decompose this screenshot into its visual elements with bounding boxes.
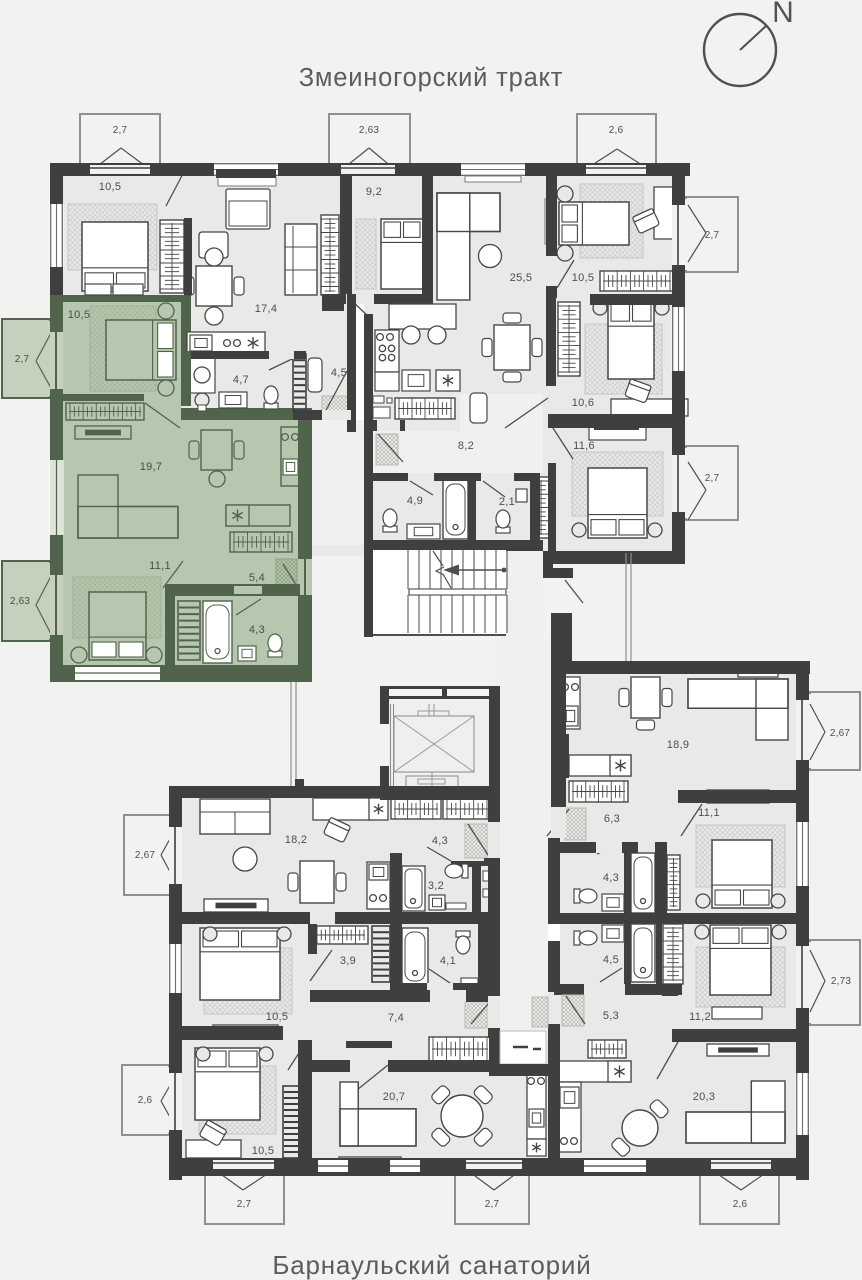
svg-text:8,2: 8,2: [458, 440, 474, 452]
svg-text:11,1: 11,1: [149, 560, 171, 572]
svg-text:20,3: 20,3: [693, 1091, 716, 1103]
svg-text:11,2: 11,2: [689, 1011, 711, 1023]
svg-text:11,6: 11,6: [573, 440, 595, 452]
svg-text:19,7: 19,7: [140, 461, 163, 473]
svg-text:7,4: 7,4: [388, 1012, 404, 1024]
svg-text:5,3: 5,3: [603, 1010, 619, 1022]
svg-text:4,5: 4,5: [331, 367, 347, 379]
svg-text:4,1: 4,1: [440, 955, 456, 967]
svg-text:18,9: 18,9: [667, 739, 690, 751]
svg-text:17,4: 17,4: [255, 303, 278, 315]
svg-text:9,2: 9,2: [366, 186, 382, 198]
svg-text:N: N: [772, 0, 794, 29]
svg-text:4,3: 4,3: [432, 835, 448, 847]
svg-text:2,6: 2,6: [609, 125, 624, 136]
svg-text:Барнаульский санаторий: Барнаульский санаторий: [272, 1250, 591, 1280]
svg-text:2,7: 2,7: [15, 354, 30, 365]
svg-text:10,5: 10,5: [266, 1011, 289, 1023]
svg-text:4,3: 4,3: [603, 872, 619, 884]
svg-text:10,5: 10,5: [99, 181, 122, 193]
svg-text:2,67: 2,67: [830, 728, 851, 739]
svg-text:6,3: 6,3: [604, 813, 620, 825]
svg-text:2,7: 2,7: [705, 473, 720, 484]
svg-text:2,6: 2,6: [138, 1095, 153, 1106]
svg-text:4,5: 4,5: [603, 954, 619, 966]
svg-text:2,73: 2,73: [831, 976, 852, 987]
svg-text:2,63: 2,63: [359, 125, 380, 136]
svg-text:Змеиногорский тракт: Змеиногорский тракт: [299, 64, 564, 92]
svg-text:18,2: 18,2: [285, 834, 308, 846]
svg-text:4,7: 4,7: [233, 374, 249, 386]
svg-text:5,4: 5,4: [249, 572, 265, 584]
svg-text:10,5: 10,5: [572, 272, 595, 284]
svg-text:2,7: 2,7: [485, 1199, 500, 1210]
svg-text:11,1: 11,1: [698, 807, 720, 819]
svg-text:2,7: 2,7: [113, 125, 128, 136]
svg-text:25,5: 25,5: [510, 272, 533, 284]
svg-text:20,7: 20,7: [383, 1091, 406, 1103]
svg-text:3,2: 3,2: [428, 880, 444, 892]
svg-text:2,63: 2,63: [10, 596, 31, 607]
svg-text:2,67: 2,67: [135, 850, 156, 861]
svg-text:4,3: 4,3: [249, 624, 265, 636]
svg-text:2,6: 2,6: [733, 1199, 748, 1210]
svg-text:10,5: 10,5: [252, 1145, 275, 1157]
svg-text:2,7: 2,7: [237, 1199, 252, 1210]
svg-text:10,6: 10,6: [572, 397, 595, 409]
svg-text:3,9: 3,9: [340, 955, 356, 967]
svg-text:10,5: 10,5: [68, 309, 91, 321]
svg-text:4,9: 4,9: [407, 495, 423, 507]
svg-text:2,7: 2,7: [705, 230, 720, 241]
svg-text:2,1: 2,1: [499, 496, 515, 508]
